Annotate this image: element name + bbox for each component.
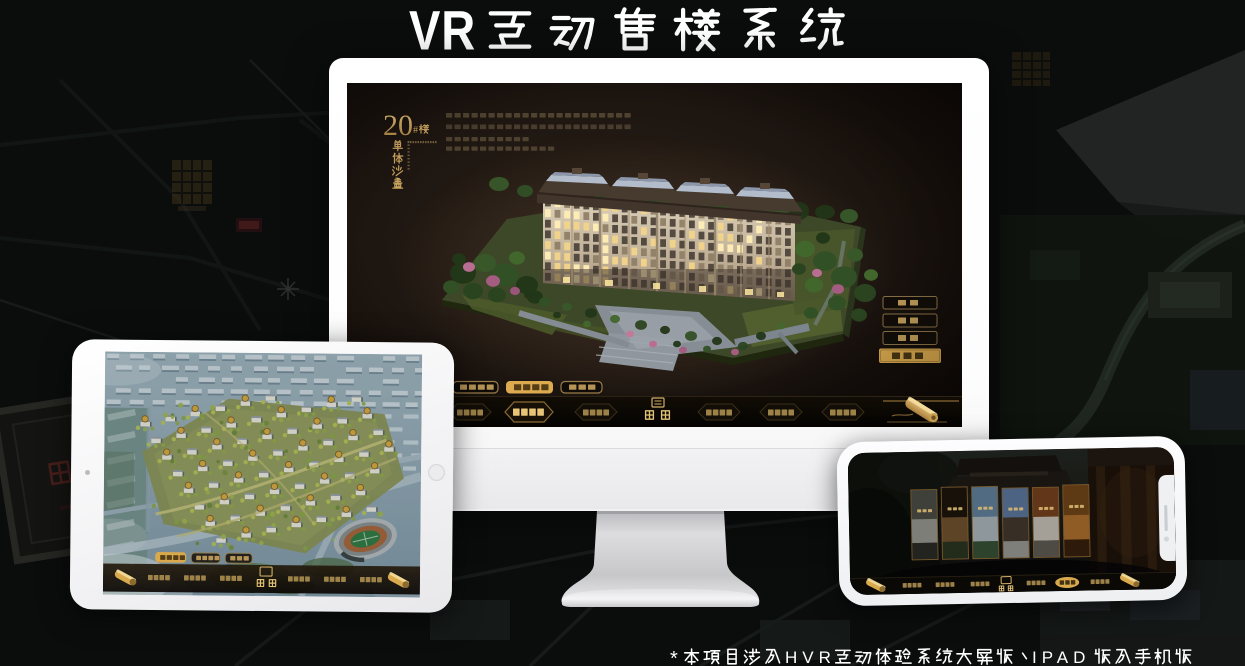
svg-text:IPAD: IPAD	[1032, 648, 1090, 666]
svg-text:*: *	[670, 648, 678, 666]
svg-text:HVR: HVR	[785, 648, 836, 666]
svg-text:VR: VR	[409, 4, 476, 61]
